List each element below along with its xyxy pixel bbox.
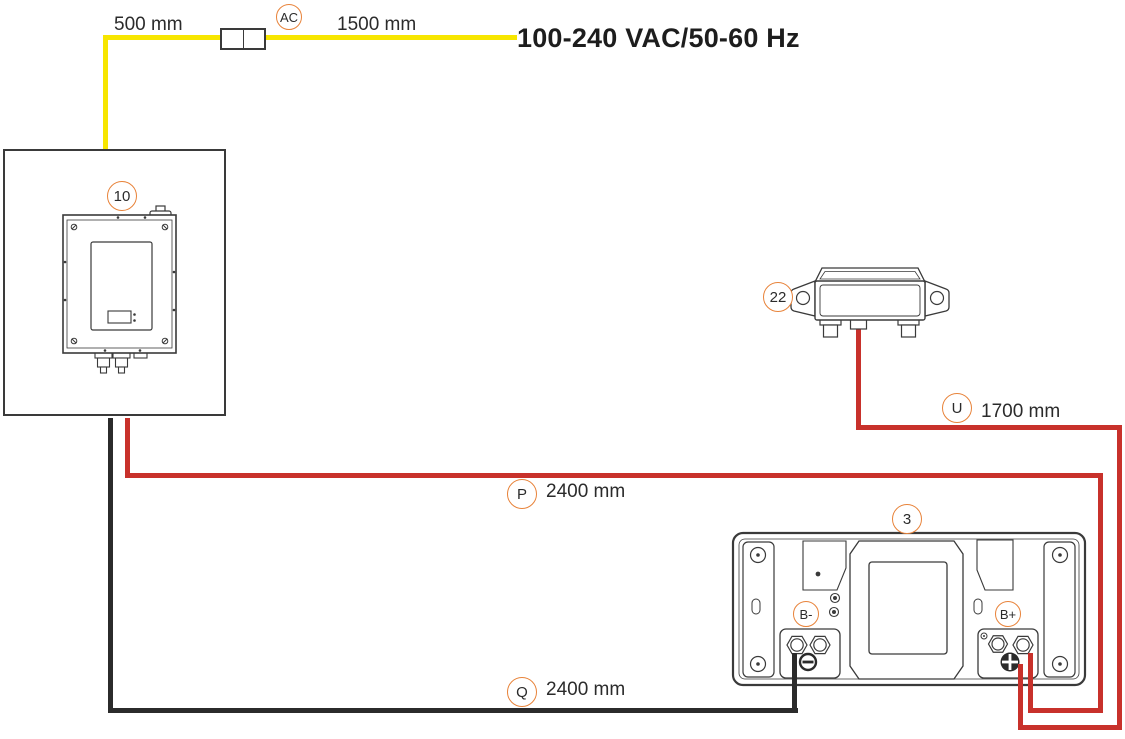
interface-module-drawing <box>780 258 960 343</box>
p-cable-bottom-run <box>1028 708 1103 713</box>
q-cable-drop <box>108 418 113 713</box>
charger-drawing <box>55 195 185 380</box>
callout-charger-10: 10 <box>107 181 137 211</box>
ac-connector-cell <box>222 30 244 48</box>
q-cable-run <box>108 708 798 713</box>
p-cable-run <box>125 473 1103 478</box>
u-cable-run <box>856 425 1122 430</box>
ac-input-length-label: 500 mm <box>114 14 183 36</box>
callout-battery-negative: B- <box>793 601 819 627</box>
q-cable-length-label: 2400 mm <box>546 679 625 701</box>
callout-p-cable: P <box>507 479 537 509</box>
u-cable-length-label: 1700 mm <box>981 401 1060 423</box>
ac-cable-length-label: 1500 mm <box>337 14 416 36</box>
q-cable-terminal-riser <box>792 653 797 713</box>
u-cable-terminal-riser <box>1018 664 1023 730</box>
ac-cable-vertical <box>103 35 108 149</box>
callout-battery-positive: B+ <box>995 601 1021 627</box>
wiring-diagram: AC 10 22 3 U P Q B- B+ 500 mm 1500 mm 17… <box>0 0 1125 739</box>
u-cable-bottom-run <box>1018 725 1122 730</box>
ac-inline-connector <box>220 28 266 50</box>
p-cable-terminal-riser <box>1028 653 1033 713</box>
p-cable-length-label: 2400 mm <box>546 481 625 503</box>
battery-drawing <box>725 525 1095 695</box>
callout-u-cable: U <box>942 393 972 423</box>
u-cable-right-drop <box>1117 425 1122 730</box>
callout-q-cable: Q <box>507 677 537 707</box>
callout-module-22: 22 <box>763 282 793 312</box>
p-cable-right-drop <box>1098 473 1103 713</box>
callout-ac: AC <box>276 4 302 30</box>
power-rating-label: 100-240 VAC/50-60 Hz <box>517 23 800 54</box>
p-cable-drop <box>125 418 130 478</box>
ac-connector-cell <box>244 30 265 48</box>
callout-battery-3: 3 <box>892 504 922 534</box>
